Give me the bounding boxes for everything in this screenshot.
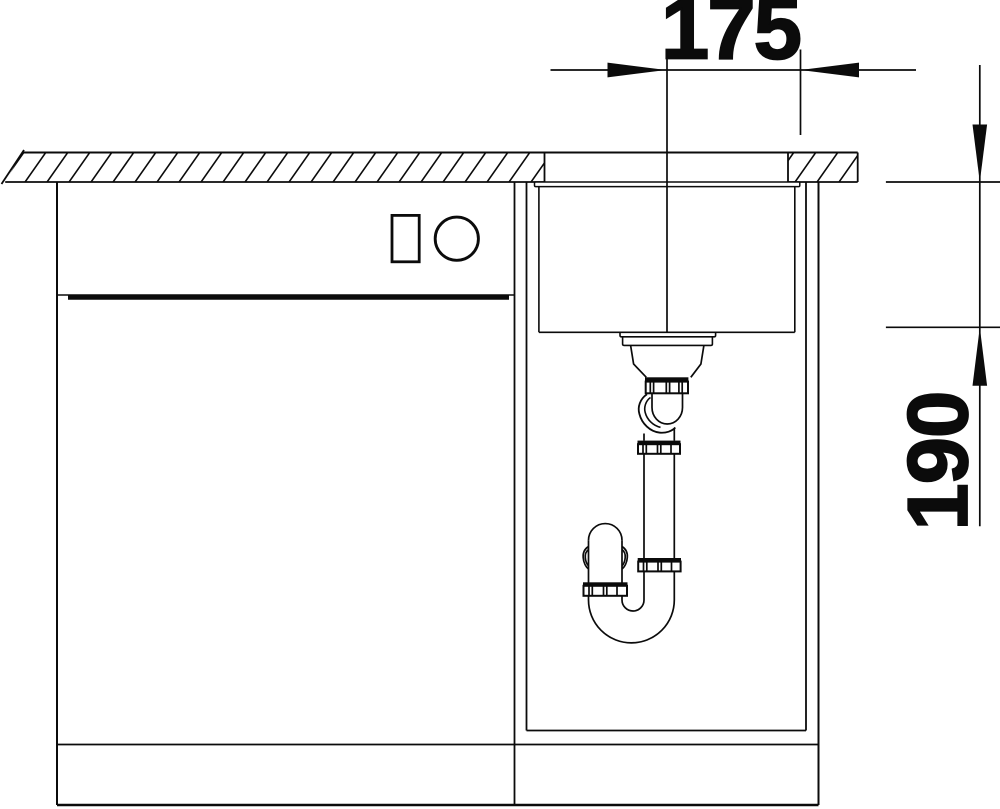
svg-text:175: 175 [661, 0, 800, 77]
svg-text:190: 190 [891, 392, 986, 531]
